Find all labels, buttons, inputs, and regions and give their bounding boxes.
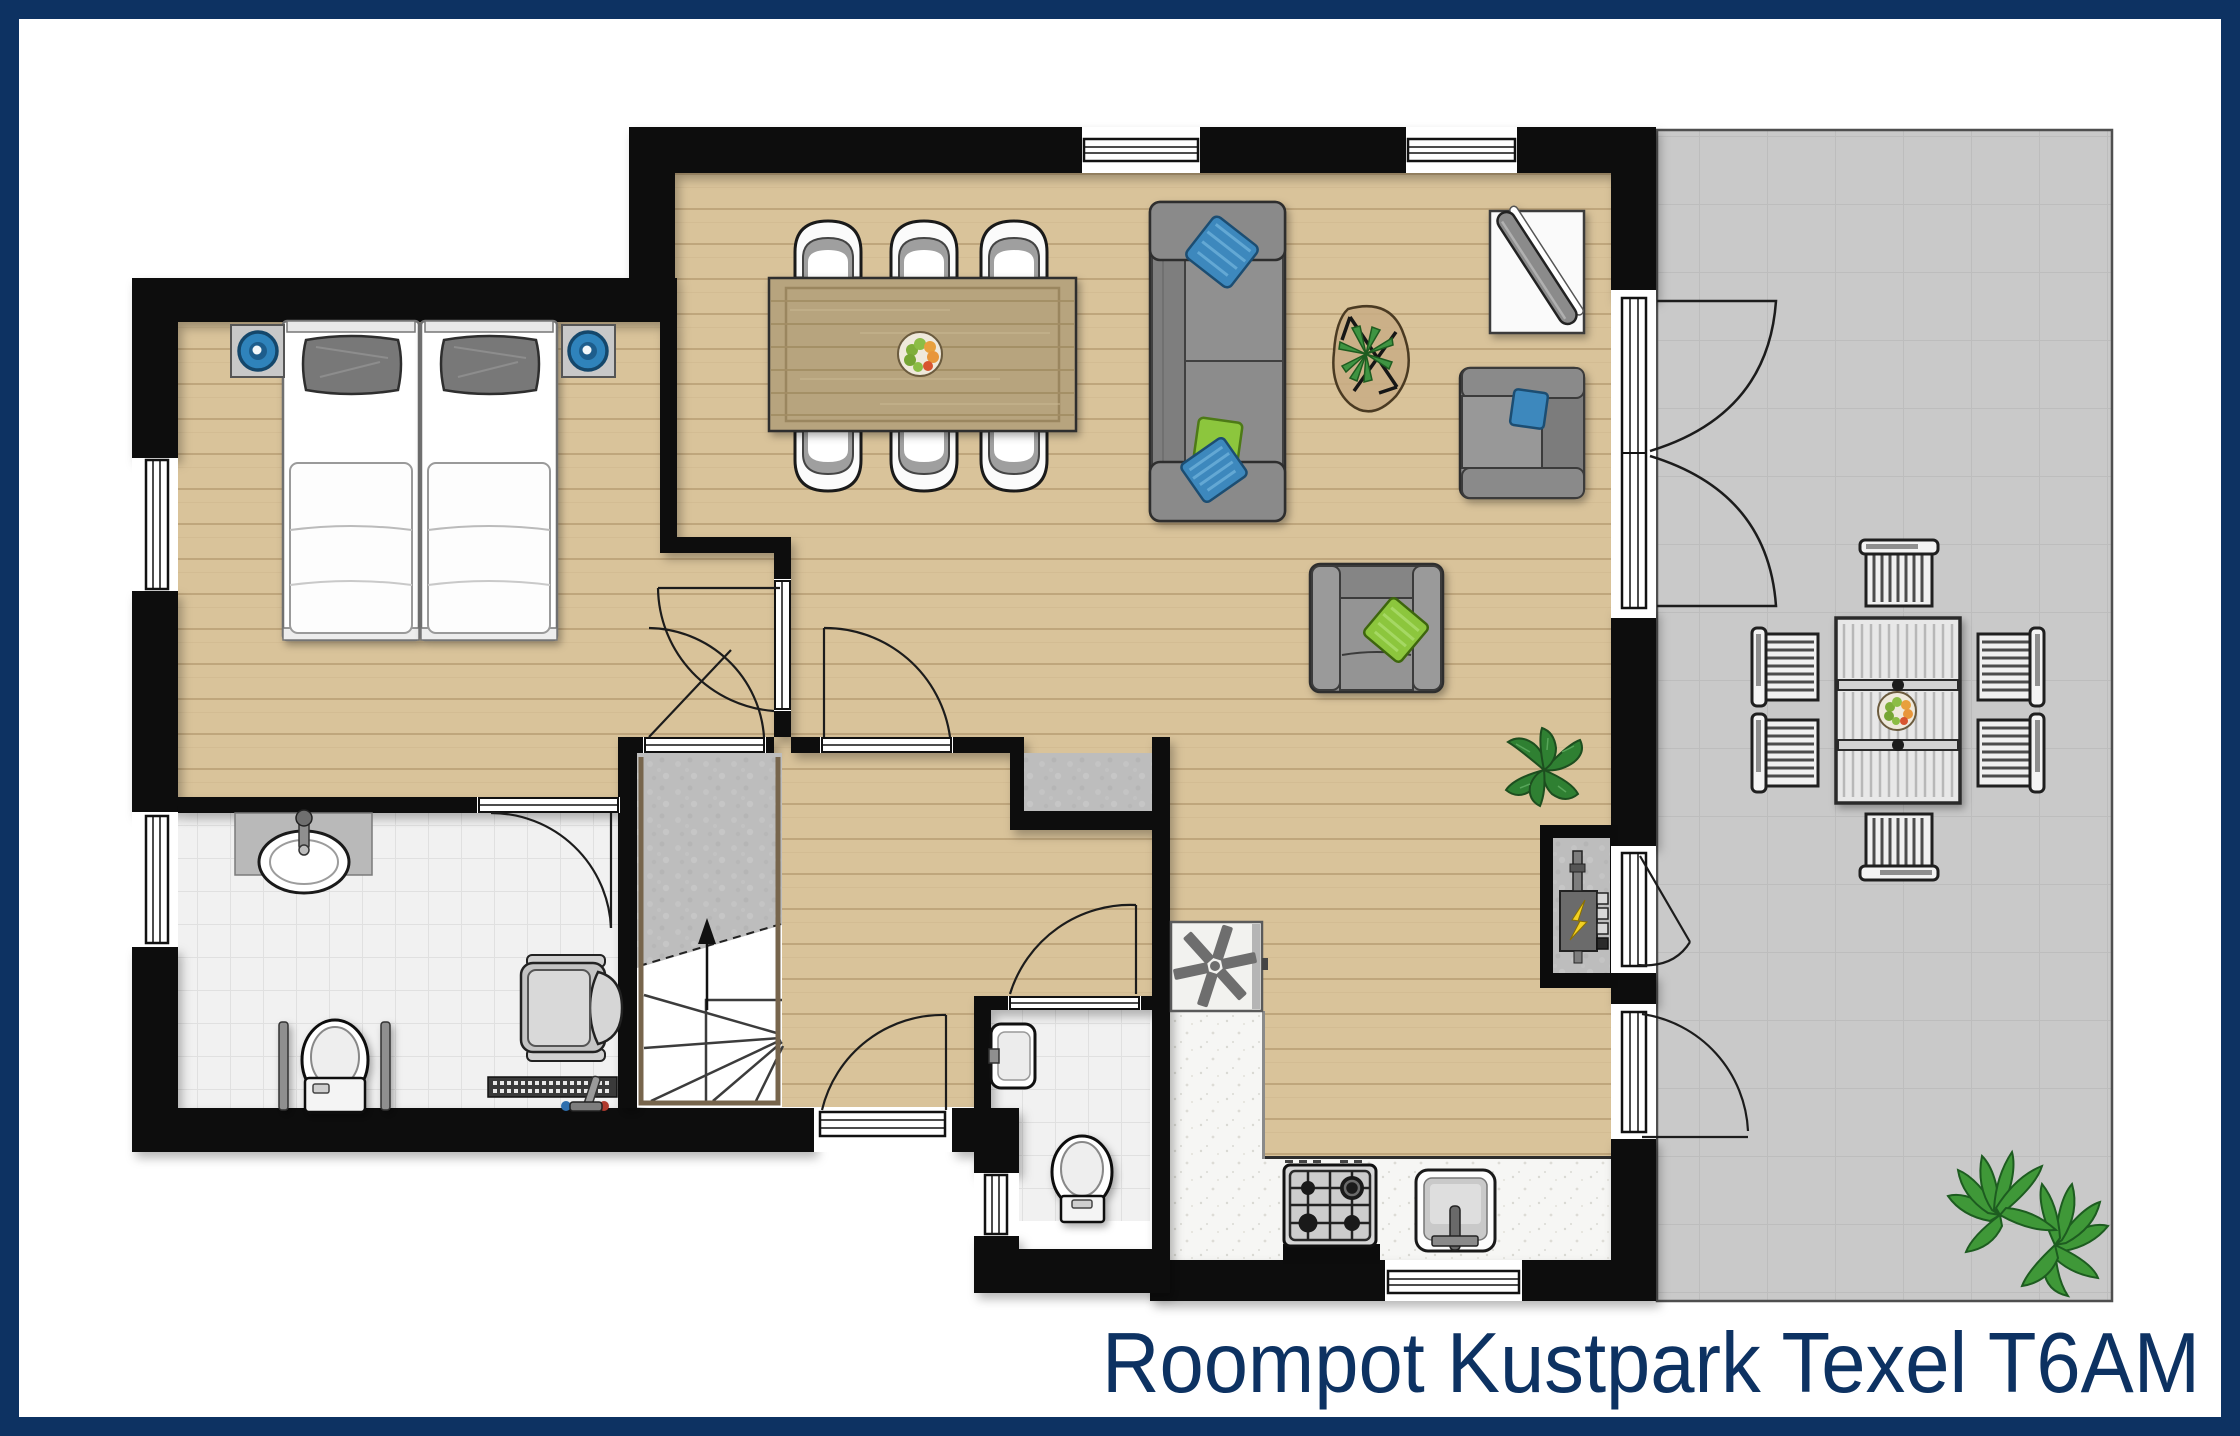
svg-text:Roompot Kustpark Texel T6AM: Roompot Kustpark Texel T6AM [1102,1316,2200,1411]
